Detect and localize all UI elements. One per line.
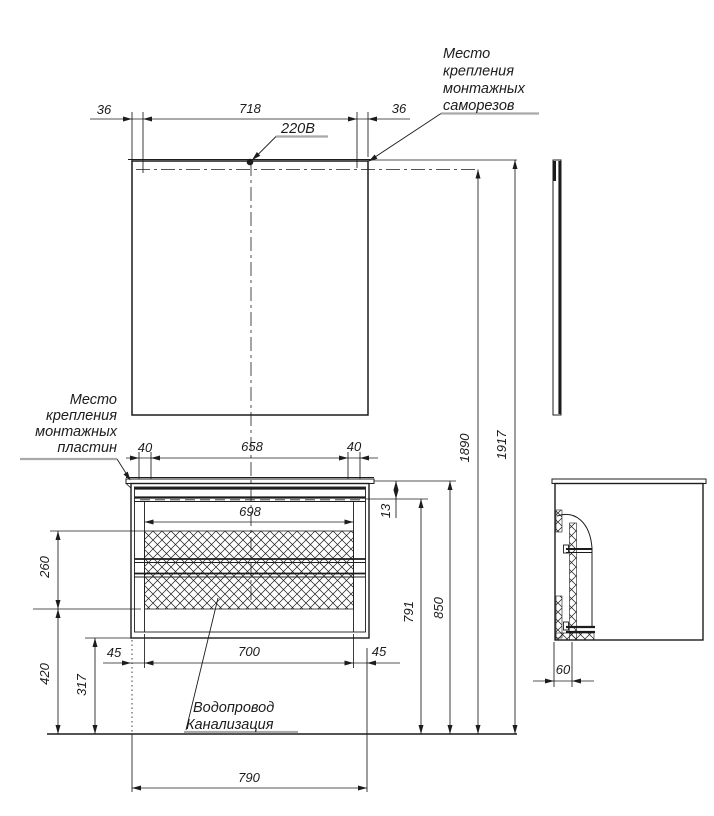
plumbing-note-line2: Канализация (186, 717, 274, 733)
plates-note-line2: крепления (46, 408, 117, 424)
cabinet-side-body (555, 484, 703, 641)
furniture-installation-drawing: 36 718 36 40 658 40 698 45 700 45 790 60… (0, 0, 714, 816)
dim-opening-width: 698 (239, 504, 261, 519)
dim-mirror-top-height: 1917 (494, 430, 509, 460)
wall-mount-hatch-area (145, 531, 354, 609)
dim-plate-right-offset: 40 (347, 439, 362, 454)
dim-mount-line-height: 1890 (457, 433, 472, 463)
drawer-slide-hatch (570, 523, 577, 640)
plates-note-label: Место крепления монтажных пластин (35, 392, 118, 456)
dim-plate-span: 658 (241, 439, 263, 454)
dim-mirror-screw-span: 718 (239, 101, 261, 116)
wall-bracket-bottom (556, 596, 562, 638)
dim-overall-width: 790 (238, 770, 260, 785)
plates-note-line4: пластин (57, 440, 117, 456)
mirror-bracket (553, 161, 557, 181)
screws-note-line4: саморезов (443, 98, 515, 114)
dim-side-wall-offset: 60 (556, 662, 571, 677)
dimension-lines (33, 112, 594, 792)
dim-hatch-height: 260 (37, 555, 52, 578)
dim-cabinet-bottom-to-floor: 317 (74, 673, 89, 695)
dim-right-side-margin: 45 (372, 644, 387, 659)
dim-top-rail-height: 13 (378, 503, 393, 518)
plates-note-line1: Место (70, 392, 117, 408)
screws-note-line2: крепления (443, 64, 514, 80)
power-note-label: 220В (280, 121, 315, 137)
cabinet-side-view (552, 479, 706, 640)
screws-note-label: Место крепления монтажных саморезов (443, 46, 526, 114)
mirror-side-view (553, 160, 562, 415)
dimension-texts: 36 718 36 40 658 40 698 45 700 45 790 60… (37, 101, 571, 785)
cabinet-front-view (126, 478, 374, 639)
plumbing-note-line1: Водопровод (193, 700, 274, 716)
annotation-texts: 220В Место крепления монтажных саморезов… (35, 46, 525, 733)
dim-hatch-to-floor: 420 (37, 662, 52, 684)
screws-note-line3: монтажных (443, 81, 526, 97)
plumbing-note-label: Водопровод Канализация (186, 700, 274, 733)
dim-mirror-right-margin: 36 (392, 101, 407, 116)
dim-plate-left-offset: 40 (138, 440, 153, 455)
screws-note-line1: Место (443, 46, 490, 62)
dim-mirror-left-margin: 36 (97, 102, 112, 117)
technical-drawing-page: 36 718 36 40 658 40 698 45 700 45 790 60… (0, 0, 714, 816)
dim-countertop-height: 850 (431, 596, 446, 618)
plates-note-line3: монтажных (35, 424, 118, 440)
wall-bracket-top (556, 510, 562, 532)
dim-left-side-margin: 45 (107, 645, 122, 660)
dim-rail-line-height: 791 (401, 601, 416, 623)
dim-hatch-width: 700 (238, 644, 260, 659)
